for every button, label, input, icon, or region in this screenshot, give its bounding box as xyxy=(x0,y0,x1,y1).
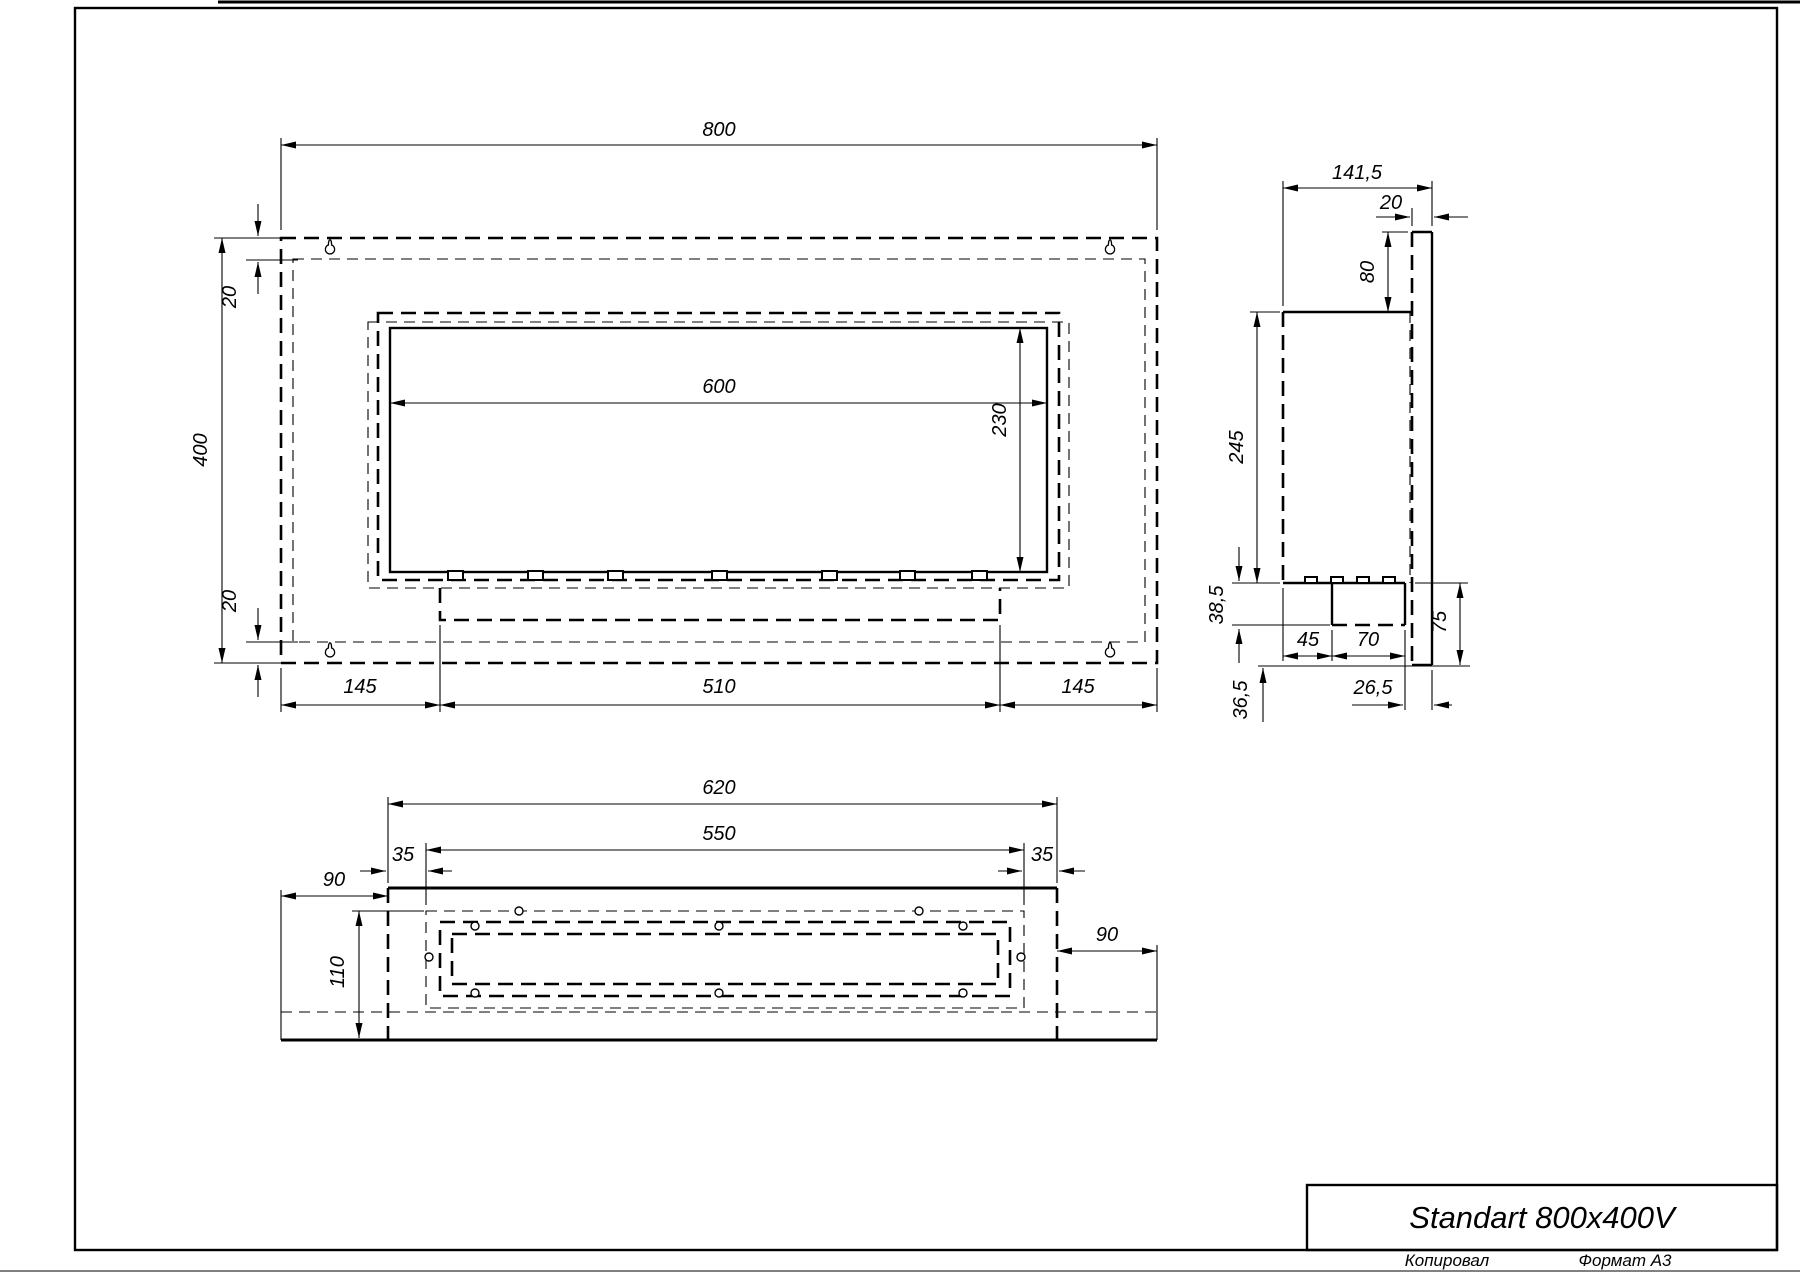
dim-label-overall-depth: 141,5 xyxy=(1332,162,1383,184)
dim-label-opening-height: 230 xyxy=(989,403,1011,437)
dim-label-front-width: 800 xyxy=(702,119,735,141)
dim-label-front-top-flange: 20 xyxy=(219,286,241,309)
dim-label-opening-width: 600 xyxy=(702,376,735,398)
dim-label-top-overhang: 80 xyxy=(1357,261,1379,283)
dim-label-tray-width: 510 xyxy=(702,676,735,698)
drawing-frame xyxy=(75,8,1777,1250)
dim-label-plate-thickness: 20 xyxy=(1379,192,1402,214)
dim-label-bottom-body-width: 620 xyxy=(702,777,735,799)
dim-label-mount-inset-right: 35 xyxy=(1031,844,1054,866)
dim-label-tray-depth: 38,5 xyxy=(1206,585,1228,625)
dim-label-body-depth: 110 xyxy=(327,956,349,988)
bottom-view: 620 550 35 35 90 90 110 xyxy=(281,777,1157,1040)
front-tray-contour xyxy=(440,588,1000,620)
dim-label-bracket-height: 75 xyxy=(1429,610,1451,633)
title-block: Standart 800x400V Копировал Формат А3 xyxy=(1307,1185,1777,1270)
dim-label-mount-span: 550 xyxy=(702,823,735,845)
dim-label-left-overhang: 90 xyxy=(323,869,345,891)
dim-label-body-height: 245 xyxy=(1226,429,1248,464)
front-view: 800 400 20 20 600 230 145 510 145 xyxy=(190,119,1157,712)
format-label: Формат А3 xyxy=(1578,1251,1672,1270)
front-backplate-contour xyxy=(293,259,1145,642)
front-opening-frame-thin xyxy=(368,322,1069,588)
dim-label-bottom-overhang: 36,5 xyxy=(1230,680,1252,720)
dim-label-tray-width-side: 70 xyxy=(1357,629,1379,651)
keyhole-slot-icon xyxy=(325,240,1114,657)
dim-label-rear-gap: 26,5 xyxy=(1353,677,1394,699)
dim-label-front-height: 400 xyxy=(190,433,212,466)
dim-label-right-offset: 145 xyxy=(1061,676,1095,698)
drawing-sheet: 800 400 20 20 600 230 145 510 145 xyxy=(0,0,1800,1273)
drawing-title: Standart 800x400V xyxy=(1409,1200,1678,1235)
front-outer-contour xyxy=(281,238,1157,663)
side-view: 141,5 20 80 245 38,5 45 70 26,5 xyxy=(1206,162,1470,722)
front-opening-frame-bold xyxy=(378,313,1059,580)
dim-label-tray-offset: 45 xyxy=(1297,629,1320,651)
dim-label-mount-inset-left: 35 xyxy=(392,844,415,866)
front-opening xyxy=(390,328,1047,572)
dim-label-front-bottom-flange: 20 xyxy=(219,590,241,613)
bottom-opening-contour xyxy=(452,934,998,984)
dim-label-left-offset: 145 xyxy=(343,676,377,698)
dim-label-right-overhang: 90 xyxy=(1096,924,1118,946)
copied-label: Копировал xyxy=(1405,1251,1490,1270)
burner-tabs xyxy=(448,571,987,580)
bottom-mount-contour xyxy=(426,911,1024,1008)
drawing-canvas: 800 400 20 20 600 230 145 510 145 xyxy=(0,0,1800,1273)
sheet-edges xyxy=(0,2,1800,1271)
